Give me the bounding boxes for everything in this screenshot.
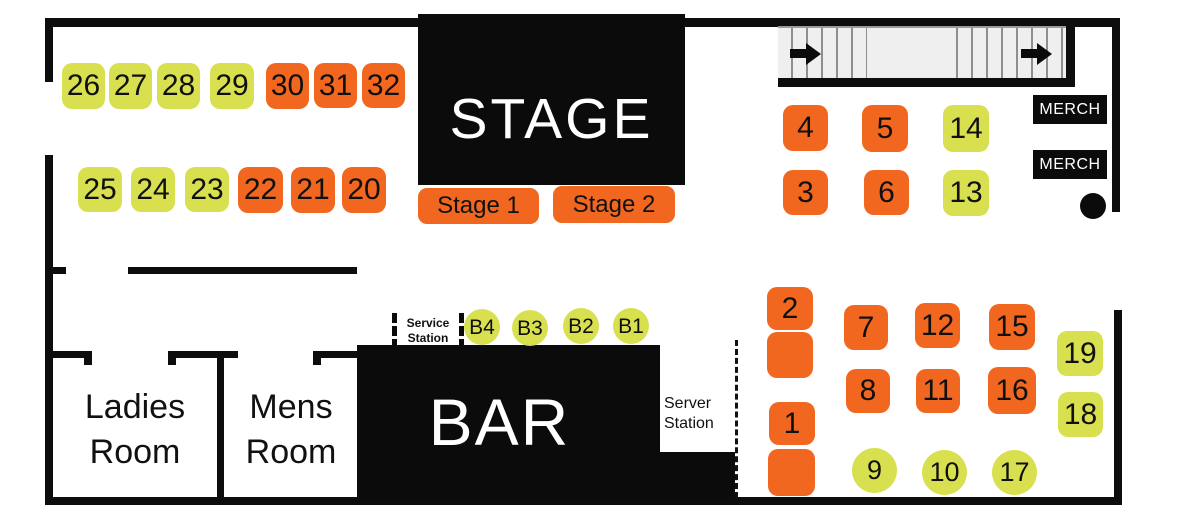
restroom-wall-b	[168, 351, 238, 358]
table-25[interactable]: 25	[78, 167, 122, 212]
floorplan: STAGE Stage 1 Stage 2 MERCH MERCH BAR Se…	[0, 0, 1200, 525]
table-19[interactable]: 19	[1057, 331, 1103, 376]
stage-1-label: Stage 1	[437, 192, 520, 220]
table-B3[interactable]: B3	[512, 310, 548, 346]
table-1[interactable]: 1	[769, 402, 815, 445]
restroom-divider-wall	[217, 351, 224, 498]
table-B2[interactable]: B2	[563, 308, 599, 344]
ladies-room-label: Ladies Room	[60, 385, 210, 475]
bar-annex	[660, 452, 735, 498]
table-15[interactable]: 15	[989, 304, 1035, 350]
table-7[interactable]: 7	[844, 305, 888, 350]
server-station-boundary	[735, 340, 738, 498]
table-22[interactable]: 22	[238, 167, 283, 213]
table-11[interactable]: 11	[916, 369, 960, 413]
mens-room-label: Mens Room	[228, 385, 354, 475]
wall-left-door-stub	[53, 267, 66, 274]
table-2b[interactable]	[767, 332, 813, 378]
table-29[interactable]: 29	[210, 63, 254, 109]
bar-area: BAR	[357, 345, 660, 498]
merch-bottom-label: MERCH	[1039, 156, 1100, 174]
wall-left-lower	[45, 155, 53, 505]
merch-dot-icon	[1080, 193, 1106, 219]
table-B1[interactable]: B1	[613, 308, 649, 344]
table-30[interactable]: 30	[266, 63, 309, 109]
table-10[interactable]: 10	[922, 450, 967, 495]
table-8[interactable]: 8	[846, 369, 890, 413]
service-station-line2: Station	[408, 331, 449, 346]
stairs-right-wall	[1066, 26, 1075, 87]
wall-right-lower	[1114, 310, 1122, 505]
table-27[interactable]: 27	[109, 63, 152, 109]
stage-2-label: Stage 2	[573, 191, 656, 219]
stage-area: STAGE	[418, 14, 685, 185]
server-station: Server Station	[664, 394, 736, 434]
table-2[interactable]: 2	[767, 287, 813, 330]
stair-landing	[867, 28, 947, 79]
service-station-line1: Service	[407, 316, 450, 331]
table-6[interactable]: 6	[864, 170, 909, 215]
table-5[interactable]: 5	[862, 105, 908, 152]
table-B4[interactable]: B4	[464, 309, 500, 345]
restroom-wall-b-jamb	[168, 351, 176, 365]
table-16[interactable]: 16	[988, 367, 1036, 414]
table-21[interactable]: 21	[291, 167, 335, 213]
wall-left-upper	[45, 18, 53, 82]
server-station-line1: Server	[664, 394, 736, 414]
table-12[interactable]: 12	[915, 303, 960, 348]
merch-top-label: MERCH	[1039, 101, 1100, 119]
table-28[interactable]: 28	[157, 63, 200, 109]
wall-middle-partition	[128, 267, 357, 274]
table-31[interactable]: 31	[314, 63, 357, 108]
stage-1-button[interactable]: Stage 1	[418, 188, 539, 224]
table-3[interactable]: 3	[783, 170, 828, 215]
restroom-wall-c-jamb	[313, 351, 321, 365]
stage-2-button[interactable]: Stage 2	[553, 186, 675, 223]
restroom-wall-a-jamb	[84, 351, 92, 365]
table-32[interactable]: 32	[362, 63, 405, 108]
table-24[interactable]: 24	[131, 167, 175, 212]
merch-stand-top: MERCH	[1033, 95, 1107, 124]
stairs-bottom-wall	[778, 78, 1074, 87]
table-4[interactable]: 4	[783, 105, 828, 151]
service-station: Service Station	[392, 313, 464, 349]
table-23[interactable]: 23	[185, 167, 229, 212]
table-20[interactable]: 20	[342, 167, 386, 213]
table-14[interactable]: 14	[943, 105, 989, 152]
table-18[interactable]: 18	[1058, 392, 1103, 437]
stair-arrow-right-icon	[1021, 43, 1052, 65]
table-17[interactable]: 17	[992, 450, 1037, 495]
table-9[interactable]: 9	[852, 448, 897, 493]
stage-label: STAGE	[450, 86, 654, 152]
bar-label: BAR	[429, 384, 571, 460]
table-26[interactable]: 26	[62, 63, 105, 109]
wall-right-upper	[1112, 18, 1120, 212]
stairs	[778, 26, 1066, 79]
table-13[interactable]: 13	[943, 170, 989, 216]
table-1b[interactable]	[768, 449, 815, 496]
wall-bottom	[45, 497, 1122, 505]
stair-arrow-left-icon	[790, 43, 821, 65]
server-station-line2: Station	[664, 414, 736, 434]
merch-stand-bottom: MERCH	[1033, 150, 1107, 179]
